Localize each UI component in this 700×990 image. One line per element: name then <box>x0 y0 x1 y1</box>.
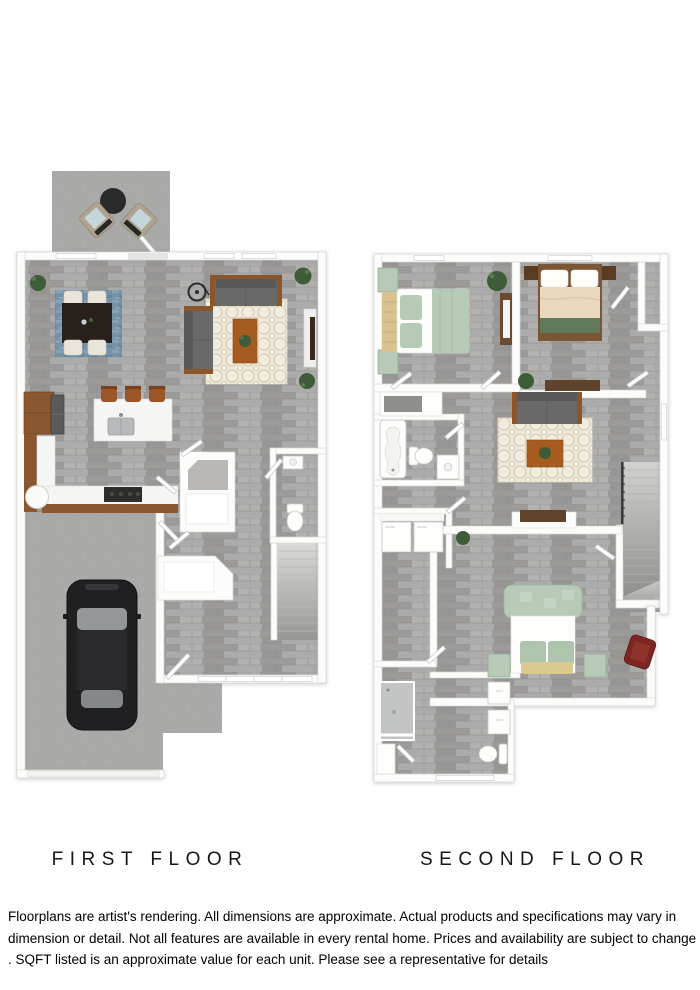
refrigerator-icon <box>51 395 64 434</box>
counter-icon <box>37 436 55 490</box>
first-floor-plan <box>17 171 326 778</box>
plant-icon <box>518 373 534 389</box>
window-icon <box>548 256 592 261</box>
window-icon <box>436 776 494 781</box>
counter-icon <box>42 504 178 513</box>
pantry <box>180 452 235 532</box>
water-heater-icon <box>26 486 49 509</box>
dining-chair-icon <box>64 340 82 355</box>
bar-stool-icon <box>101 386 165 402</box>
shower-icon <box>380 682 414 740</box>
exterior-wall <box>318 252 326 683</box>
exterior-wall <box>430 698 655 706</box>
ottoman-icon <box>488 654 510 677</box>
plant-icon <box>456 531 470 545</box>
window-icon <box>56 254 96 259</box>
window-icon <box>662 404 667 440</box>
interior-wall <box>638 262 645 330</box>
nightstand-icon <box>378 350 398 374</box>
garage-door-icon <box>28 771 159 777</box>
linen-closet-icon <box>377 744 395 774</box>
exterior-wall <box>17 252 25 778</box>
interior-wall <box>446 508 452 568</box>
coffee-table-icon <box>527 440 563 467</box>
loveseat-icon <box>184 306 213 374</box>
second-floor-label: SECOND FLOOR <box>385 849 685 871</box>
plant-icon <box>239 335 251 347</box>
interior-wall <box>374 508 452 514</box>
interior-wall <box>512 262 520 392</box>
kitchen-island-icon <box>94 399 172 441</box>
interior-wall <box>638 324 668 331</box>
plant-icon <box>299 373 315 389</box>
plant-icon <box>295 268 312 285</box>
disclaimer-line: dimension or detail. Not all features ar… <box>8 928 694 950</box>
second-floor-plan <box>374 254 668 782</box>
car-icon <box>63 580 141 730</box>
window-icon <box>414 256 444 261</box>
nightstand-icon <box>524 266 538 280</box>
stoop <box>163 683 222 733</box>
tv-console-icon <box>304 309 316 367</box>
front-windows-icon <box>198 677 312 682</box>
bed-icon <box>382 289 469 353</box>
disclaimer-line: . SQFT listed is an approximate value fo… <box>8 949 694 971</box>
nightstand-icon <box>602 266 616 280</box>
disclaimer-text: Floorplans are artist's rendering. All d… <box>8 906 694 971</box>
dining-area <box>55 290 122 357</box>
vanity-icon <box>488 682 510 704</box>
first-floor-label: FIRST FLOOR <box>0 849 300 871</box>
floorplans-graphic <box>0 0 700 840</box>
desk-icon <box>512 510 576 528</box>
toilet-icon <box>409 447 433 465</box>
window-icon <box>204 254 234 259</box>
toilet-icon <box>287 504 303 531</box>
toilet-icon <box>479 744 507 764</box>
under-stair-closet <box>158 556 233 600</box>
bathtub-icon <box>380 420 406 478</box>
interior-wall <box>374 480 464 486</box>
ottoman-icon <box>584 654 606 677</box>
vanity-icon <box>488 710 510 734</box>
bed-icon <box>538 264 602 341</box>
patio-door-opening <box>128 253 168 260</box>
dining-table-icon <box>62 303 112 343</box>
staircase <box>271 540 318 640</box>
vanity-icon <box>437 455 459 479</box>
sofa-icon <box>210 275 282 306</box>
vanity-icon <box>283 456 303 469</box>
coffee-table-icon <box>233 319 257 363</box>
disclaimer-line: Floorplans are artist's rendering. All d… <box>8 906 694 928</box>
patio <box>52 171 170 261</box>
floorplan-page: FIRST FLOOR SECOND FLOOR Floorplans are … <box>0 0 700 990</box>
dresser-icon <box>500 293 512 345</box>
plant-icon <box>30 275 46 291</box>
dresser-icon <box>545 380 600 391</box>
plant-icon <box>539 447 551 459</box>
window-icon <box>242 254 276 259</box>
bed-icon <box>504 585 582 674</box>
interior-wall <box>374 661 436 667</box>
linen-closet-icon <box>380 392 442 416</box>
plant-icon <box>487 271 507 291</box>
nightstand-icon <box>378 268 398 292</box>
range-icon <box>104 487 142 502</box>
sofa-icon <box>512 392 582 424</box>
dining-chair-icon <box>88 340 106 355</box>
